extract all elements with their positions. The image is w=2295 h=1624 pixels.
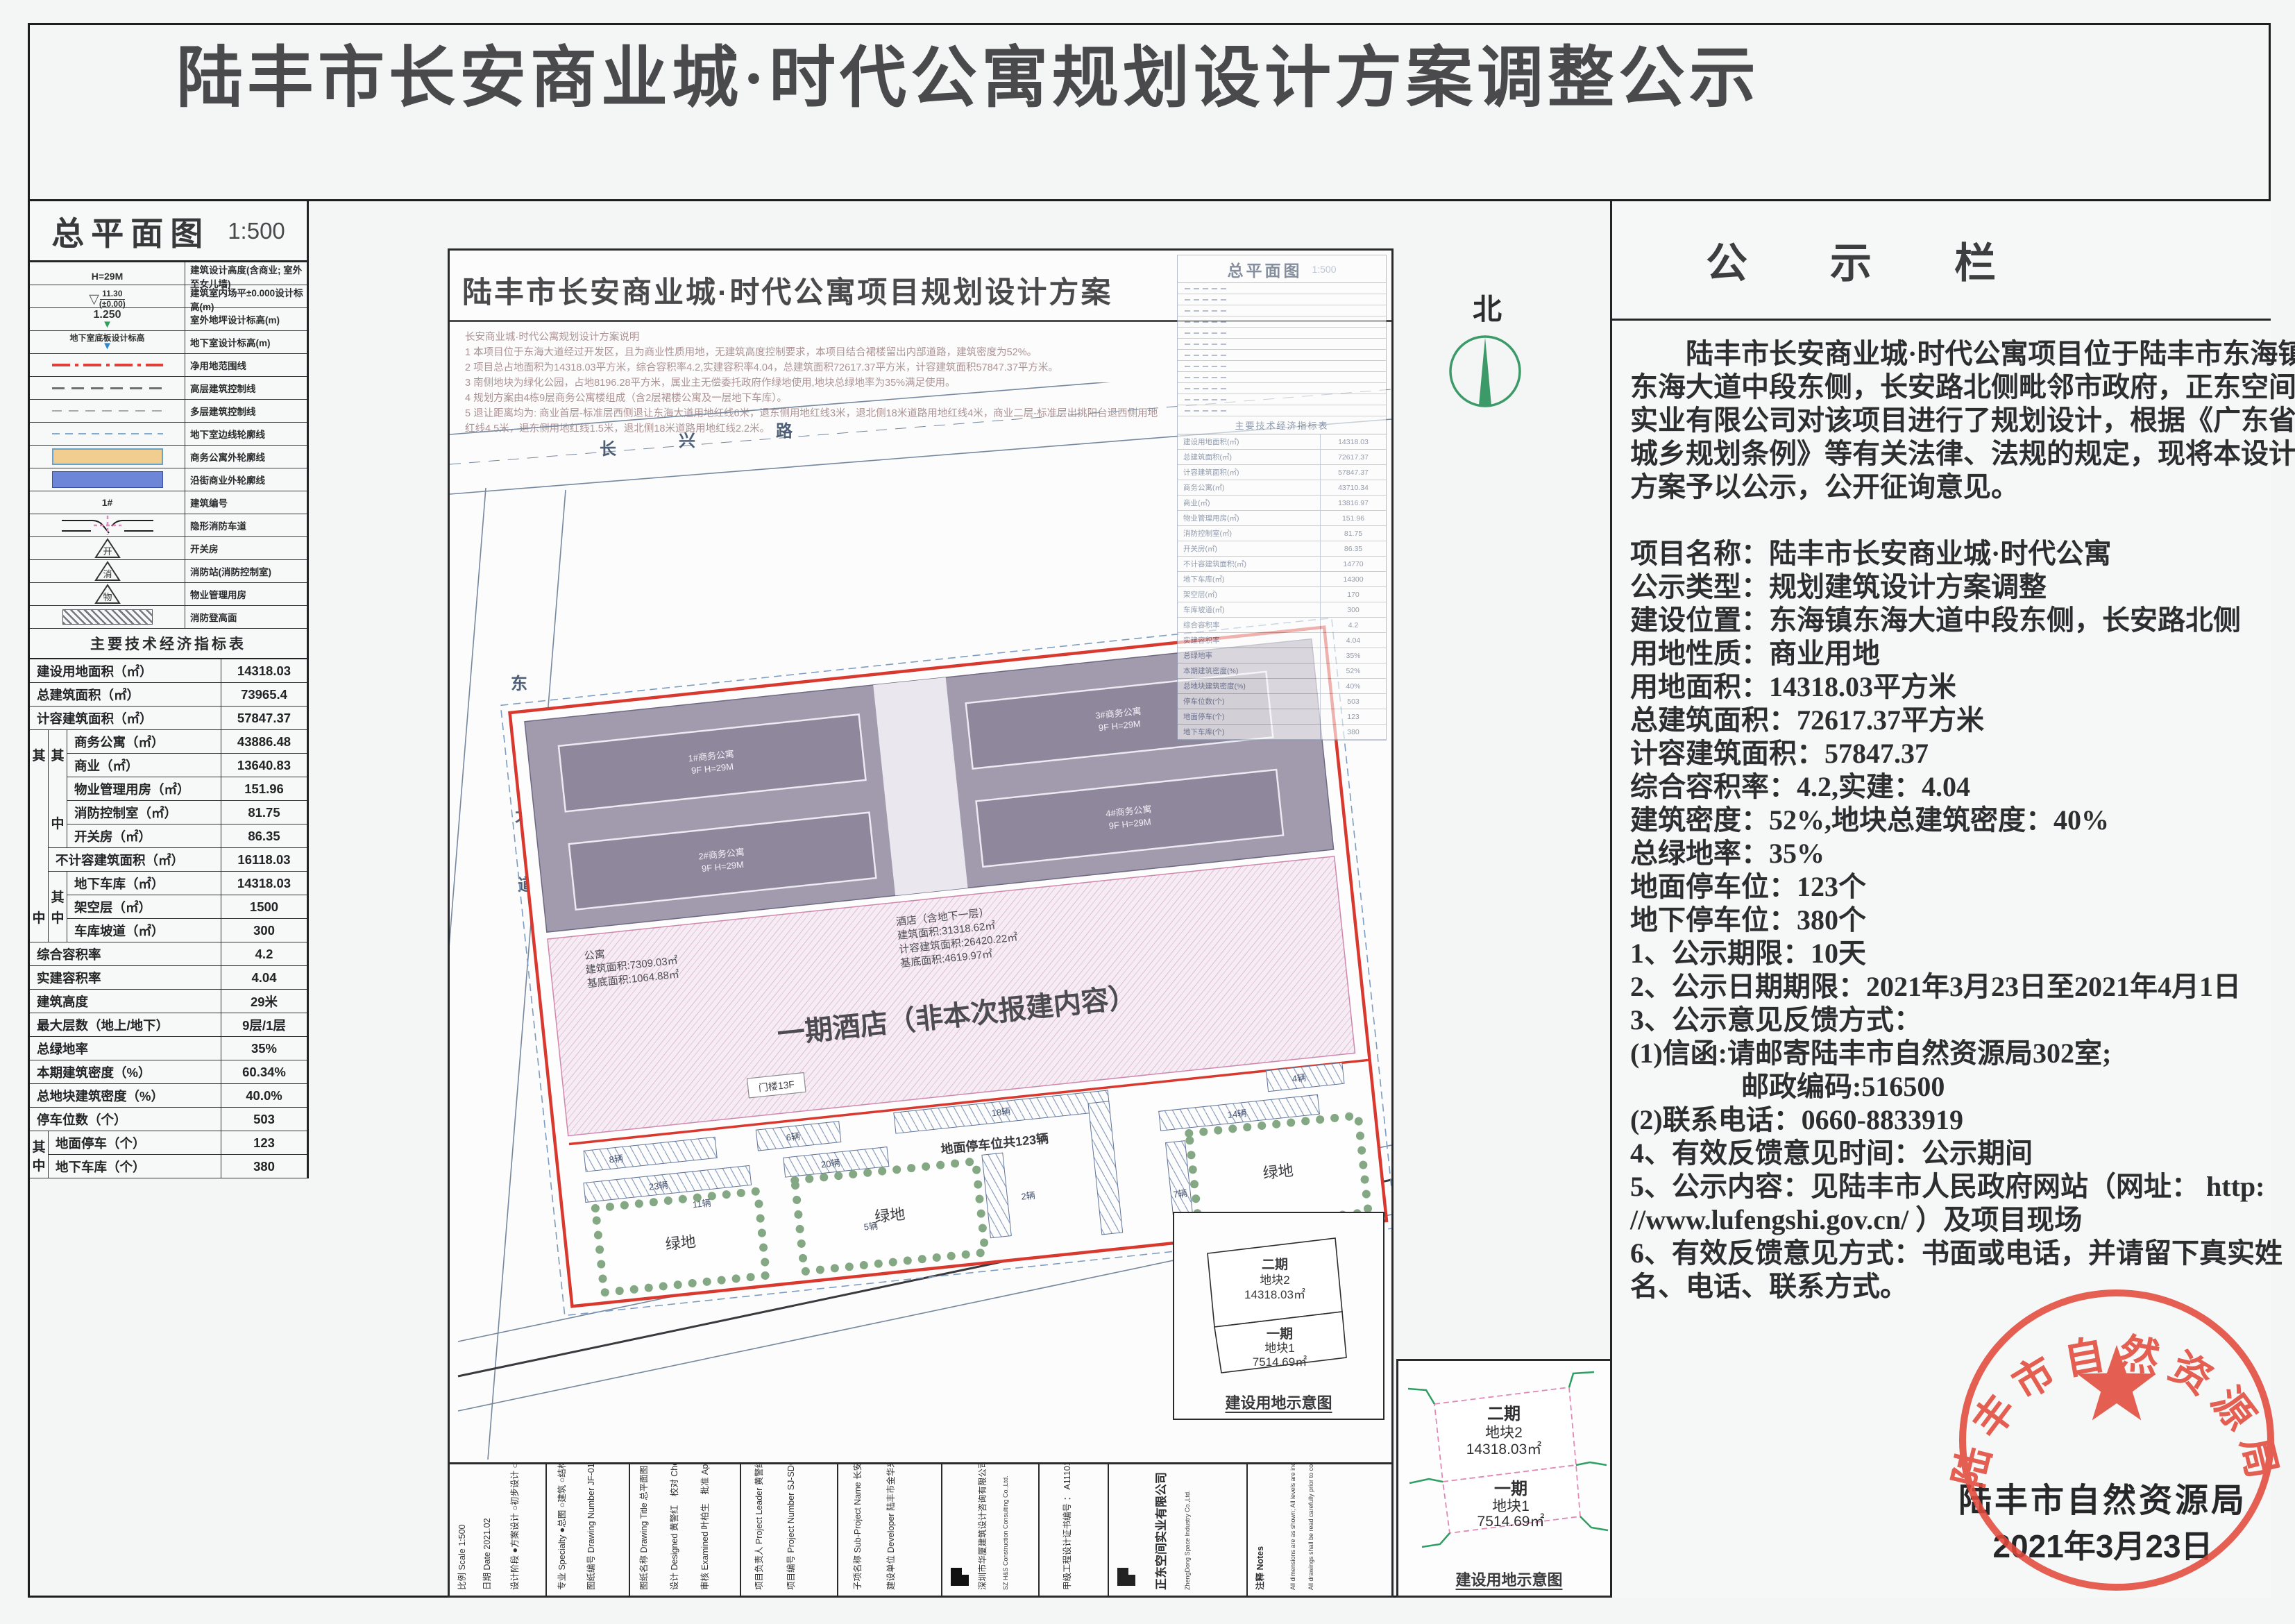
group-char: 中 <box>32 1156 45 1174</box>
mini-legend-row <box>1178 350 1386 361</box>
property-mgmt-symbol: 物 <box>30 583 185 605</box>
group-char: 其 <box>51 745 64 764</box>
mini-label: 不计容建筑面积(㎡) <box>1178 557 1320 571</box>
mini-label: 地面停车(个) <box>1178 709 1320 724</box>
mini-row: 开关房(㎡)86.35 <box>1178 541 1386 557</box>
indicator-label: 总地块建筑密度（%） <box>30 1084 221 1108</box>
tb-developer: 建设单位 Developer 陆丰市金华来花园酒店有限公司 <box>883 1464 897 1590</box>
legend-title: 总平面图 <box>51 207 210 255</box>
legend-row: 消防登高面 <box>30 606 307 629</box>
legend-row: 隐形消防车道 <box>30 514 307 537</box>
titleblock-notes-cell: 注释 Notes All dimensions are as shown; Al… <box>1248 1464 1384 1596</box>
legend-label: 地下室边线轮廓线 <box>185 423 307 445</box>
mini-label: 开关房(㎡) <box>1178 541 1320 556</box>
mini-ind-title: 主要技术经济指标表 <box>1178 416 1386 434</box>
notice-line: 建筑密度：52%,地块总建筑密度：40% <box>1630 804 2262 837</box>
indicator-value: 35% <box>221 1037 307 1060</box>
phase2-label: 二期 <box>1262 1257 1288 1272</box>
legend-label: 高层建筑控制线 <box>185 377 307 399</box>
notice-header: 公 示 栏 <box>1612 201 2271 321</box>
legend-row: 开 开关房 <box>30 537 307 560</box>
parcel2-area: 14318.03㎡ <box>1466 1441 1542 1457</box>
north-road-char: 兴 <box>679 432 695 450</box>
mini-value: 81.75 <box>1320 526 1386 541</box>
indicator-label: 计容建筑面积（㎡） <box>30 707 221 730</box>
note-line: 2 项目总占地面积为14318.03平方米，综合容积率4.2,实建容积率4.04… <box>465 360 1159 375</box>
indicator-label: 实建容积率 <box>30 966 221 990</box>
titleblock-leader-cell: 项目负责人 Project Leader 黄警红 项目编号 Project Nu… <box>741 1464 838 1596</box>
notice-line: 公示类型：规划建筑设计方案调整 <box>1630 570 2262 604</box>
titleblock-project-cell: 子项名称 Sub-Project Name 长安商业城·时代公寓 建设单位 De… <box>838 1464 942 1596</box>
legend-row: 1.250▼ 室外地坪设计标高(m) <box>30 308 307 331</box>
fire-station-symbol: 消 <box>30 560 185 582</box>
mini-legend-row <box>1178 361 1386 372</box>
notice-line: 计容建筑面积：57847.37 <box>1630 737 2262 770</box>
mini-row: 建设用地面积(㎡)14318.03 <box>1178 434 1386 450</box>
north-road-char: 路 <box>776 421 793 441</box>
indicator-label: 商务公寓（㎡） <box>67 730 221 754</box>
mini-label: 总绿地率 <box>1178 648 1320 663</box>
mini-label: 商务公寓(㎡) <box>1178 480 1320 495</box>
notice-line: 地面停车位：123个 <box>1630 870 2262 904</box>
north-arrow-icon <box>1447 328 1527 418</box>
basement-level-symbol: 地下室底板设计标高▼ <box>30 331 185 353</box>
notice-line: 4、有效反馈意见时间：公示期间 <box>1630 1137 2262 1170</box>
site-boundary-symbol <box>30 354 185 376</box>
building-number-symbol: 1# <box>30 491 185 514</box>
indicator-value: 60.34% <box>221 1060 307 1084</box>
indicator-value: 73965.4 <box>221 683 307 707</box>
legend-row: 地下室底板设计标高▼ 地下室设计标高(m) <box>30 331 307 354</box>
mini-value: 14300 <box>1320 572 1386 586</box>
mini-value: 380 <box>1320 725 1386 739</box>
blue-dash-line-icon <box>52 433 163 435</box>
mini-legend-row <box>1178 339 1386 350</box>
triangle-xiao-icon: 消 <box>94 561 121 582</box>
level-fraction: 11.30 (±0.00) <box>99 289 126 310</box>
apartment-outline-symbol <box>30 446 185 468</box>
mini-row: 停车位数(个)503 <box>1178 694 1386 709</box>
group-char: 其 <box>32 1137 45 1156</box>
building-number-text: 1# <box>102 497 113 508</box>
indicators-table-title: 主要技术经济指标表 <box>30 629 307 659</box>
mini-legend-row <box>1178 283 1386 294</box>
mini-legend-row <box>1178 394 1386 405</box>
parcel2-label: 地块2 <box>1485 1425 1523 1441</box>
indicator-label: 总建筑面积（㎡） <box>30 683 221 707</box>
legend-label: 净用地范围线 <box>185 354 307 376</box>
legend-row: 高层建筑控制线 <box>30 377 307 400</box>
mini-label: 停车位数(个) <box>1178 694 1320 709</box>
mini-row: 地下车库(个)380 <box>1178 725 1386 740</box>
gap-parcel-inset: 二期 地块2 14318.03㎡ 一期 地块1 7514.69㎡ 建设用地示意图 <box>1396 1359 1622 1598</box>
mini-row: 总地块建筑密度(%)40% <box>1178 679 1386 694</box>
mini-value: 151.96 <box>1320 511 1386 525</box>
legend-row: 净用地范围线 <box>30 354 307 377</box>
public-notice-panel: 公 示 栏 陆丰市长安商业城·时代公寓项目位于陆丰市东海镇 东海大道中段东侧，长… <box>1610 201 2271 1598</box>
parcel2-label: 地块2 <box>1260 1274 1289 1287</box>
count-label: 14辆 <box>1227 1108 1247 1120</box>
indicator-value: 14318.03 <box>221 872 307 895</box>
mini-value: 72617.37 <box>1320 450 1386 464</box>
indicator-label: 建设用地面积（㎡） <box>30 659 221 683</box>
green-label: 绿地 <box>665 1233 697 1253</box>
indicator-label: 最大层数（地上/地下） <box>30 1013 221 1037</box>
notice-line: 陆丰市长安商业城·时代公寓项目位于陆丰市东海镇 <box>1630 337 2262 371</box>
legend-label: 开关房 <box>185 537 307 559</box>
tb-examined: 审核 Examined 叶柏生 批准 Approved 黄警红 <box>697 1464 711 1590</box>
mini-table-header: 总平面图 1:500 <box>1178 255 1386 283</box>
fire-lane-symbol <box>30 514 185 536</box>
height-symbol-text: H=29M <box>92 271 124 282</box>
notice-line: 东海大道中段东侧，长安路北侧毗邻市政府，正东空间 <box>1630 371 2262 404</box>
mini-value: 52% <box>1320 663 1386 678</box>
indicator-value: 9层/1层 <box>221 1013 307 1037</box>
level-top: 11.30 <box>100 289 124 300</box>
open-triangle-icon: ▽ <box>89 291 99 307</box>
mini-value: 123 <box>1320 709 1386 724</box>
group-char: 其 <box>51 887 64 906</box>
mini-row: 综合容积率4.2 <box>1178 618 1386 633</box>
indicator-label: 开关房（㎡） <box>67 824 221 848</box>
mini-label: 总建筑面积(㎡) <box>1178 450 1320 464</box>
indicator-label: 不计容建筑面积（㎡） <box>49 848 221 872</box>
indicator-label: 商业（㎡） <box>67 754 221 777</box>
mini-value: 43710.34 <box>1320 480 1386 495</box>
mini-value: 503 <box>1320 694 1386 709</box>
fire-lane-icon <box>59 515 156 536</box>
notice-body: 陆丰市长安商业城·时代公寓项目位于陆丰市东海镇 东海大道中段东侧，长安路北侧毗邻… <box>1630 337 2262 1303</box>
mini-row: 地面停车(个)123 <box>1178 709 1386 725</box>
legend-panel-header: 总平面图 1:500 <box>30 201 307 262</box>
notice-line: 5、公示内容：见陆丰市人民政府网站（网址： http: <box>1630 1170 2262 1203</box>
indicator-value: 43886.48 <box>221 730 307 754</box>
legend-label: 消防登高面 <box>185 606 307 628</box>
siteplan-legend-panel: 总平面图 1:500 H=29M 建筑设计高度(含商业; 室外至女儿墙) ▽ 1… <box>30 201 309 1178</box>
indicator-value: 29米 <box>221 990 307 1013</box>
group-char: 中 <box>51 908 64 927</box>
indicator-value: 57847.37 <box>221 707 307 730</box>
notice-line <box>1630 504 2262 537</box>
notice-line: 6、有效反馈意见方式：书面或电话，并请留下真实姓 <box>1630 1237 2262 1270</box>
mini-scale: 1:500 <box>1312 264 1336 275</box>
tb-notes-en1: All dimensions are as shown; All levels … <box>1289 1464 1296 1590</box>
legend-label: 多层建筑控制线 <box>185 400 307 422</box>
mini-row: 总建筑面积(㎡)72617.37 <box>1178 450 1386 465</box>
mini-legend-row <box>1178 316 1386 328</box>
mini-row: 不计容建筑面积(㎡)14770 <box>1178 557 1386 572</box>
sheet-parcel-inset: 二期 地块2 14318.03㎡ 一期 地块1 7514.69㎡ 建设用地示意图 <box>1173 1212 1384 1420</box>
mini-value: 14770 <box>1320 557 1386 571</box>
mini-value: 300 <box>1320 602 1386 617</box>
mini-row: 车库坡道(㎡)300 <box>1178 602 1386 618</box>
phase2-label: 二期 <box>1487 1405 1521 1423</box>
notice-line: 城乡规划条例》等有关法律、法规的规定，现将本设计 <box>1630 437 2262 471</box>
legend-row: 1# 建筑编号 <box>30 491 307 514</box>
mini-label: 总地块建筑密度(%) <box>1178 679 1320 693</box>
seal-date-text: 2021年3月23日 <box>1950 1521 2255 1567</box>
street-commerce-outline-symbol <box>30 468 185 491</box>
mini-value: 170 <box>1320 587 1386 602</box>
sheet-parcel-diagram: 二期 地块2 14318.03㎡ 一期 地块1 7514.69㎡ <box>1174 1213 1382 1387</box>
tb-project-leader: 项目负责人 Project Leader 黄警红 <box>752 1464 765 1590</box>
mini-legend-row <box>1178 305 1386 316</box>
titleblock-specialty-cell: 专业 Specialty ●总图 ○建筑 ○结构 ○给排水 ○电气 图纸编号 D… <box>547 1464 630 1596</box>
green-label: 绿地 <box>1262 1162 1294 1182</box>
blue-triangle-icon: ▼ <box>102 342 112 350</box>
titleblock-consultant-cell: 深圳市华厦建筑设计咨询有限公司 SZ H&S Construction Cons… <box>942 1464 1040 1596</box>
mini-row: 总绿地率35% <box>1178 648 1386 663</box>
gap-parcel-diagram: 二期 地块2 14318.03㎡ 一期 地块1 7514.69㎡ <box>1398 1361 1620 1564</box>
tb-scale: 比例 Scale 1:500 <box>455 1525 468 1591</box>
notice-line: 名、电话、联系方式。 <box>1630 1270 2262 1303</box>
phase1-label: 一期 <box>1267 1326 1293 1342</box>
notice-line: 总绿地率：35% <box>1630 837 2262 870</box>
mini-row: 计容建筑面积(㎡)57847.37 <box>1178 465 1386 480</box>
highrise-control-symbol <box>30 377 185 399</box>
legend-label: 消防站(消防控制室) <box>185 560 307 582</box>
multistorey-control-symbol <box>30 400 185 422</box>
orange-rect-icon <box>52 448 163 465</box>
mini-row: 商业(㎡)13816.97 <box>1178 496 1386 511</box>
light-dash-line-icon <box>52 410 163 412</box>
mini-label: 商业(㎡) <box>1178 496 1320 510</box>
group-char: 中 <box>51 813 64 832</box>
tb-owner-cn: 正东空间实业有限公司 <box>1151 1472 1169 1590</box>
notice-line: 邮政编码:516500 <box>1630 1070 2262 1103</box>
mini-label: 地下车库(个) <box>1178 725 1320 739</box>
siteplan-sheet: 陆丰市长安商业城·时代公寓项目规划设计方案 长安商业城·时代公寓规划设计方案说明… <box>448 248 1394 1598</box>
indicator-value: 503 <box>221 1108 307 1131</box>
triangle-char: 消 <box>103 569 112 580</box>
mini-legend-row <box>1178 328 1386 339</box>
mini-value: 40% <box>1320 679 1386 693</box>
tb-cert-number: 甲级工程设计证书编号 ： A111010311 <box>1060 1464 1073 1590</box>
legend-row: 多层建筑控制线 <box>30 400 307 423</box>
mini-value: 13816.97 <box>1320 496 1386 510</box>
notice-line: 方案予以公示，公开征询意见。 <box>1630 471 2262 504</box>
indicator-value: 151.96 <box>221 777 307 801</box>
note-line: 1 本项目位于东海大道经过开发区，且为商业性质用地，无建筑高度控制要求，本项目结… <box>465 345 1159 360</box>
group-qizhong-inner2: 其中 <box>49 872 67 942</box>
note-line: 长安商业城·时代公寓规划设计方案说明 <box>465 330 1159 345</box>
titleblock-drawing-cell: 图纸名称 Drawing Title 总平面图 设计 Designed 黄警红 … <box>630 1464 741 1596</box>
mini-label: 消防控制室(㎡) <box>1178 526 1320 541</box>
north-label: 北 <box>1447 286 1527 328</box>
notice-line: 2、公示日期期限：2021年3月23日至2021年4月1日 <box>1630 970 2262 1004</box>
parcel2-area: 14318.03㎡ <box>1244 1288 1305 1301</box>
tb-phase: 设计阶段 ●方案设计 ○初步设计 ○施工图设计 <box>507 1464 520 1590</box>
mini-value: 4.2 <box>1320 618 1386 632</box>
parcel1-label: 地块1 <box>1492 1498 1530 1514</box>
indicator-value: 4.04 <box>221 966 307 990</box>
notice-line: (2)联系电话：0660-8833919 <box>1630 1103 2262 1137</box>
tb-drawing-title: 图纸名称 Drawing Title 总平面图 <box>636 1466 650 1590</box>
indicator-label: 地下车库（㎡） <box>67 872 221 895</box>
green-label: 绿地 <box>874 1205 906 1225</box>
parcel1-area: 7514.69㎡ <box>1253 1355 1307 1369</box>
legend-row: 物 物业管理用房 <box>30 583 307 606</box>
titleblock: 比例 Scale 1:500 日期 Date 2021.02 设计阶段 ●方案设… <box>450 1462 1391 1596</box>
legend-label: 物业管理用房 <box>185 583 307 605</box>
triangle-wu-icon: 物 <box>94 584 121 604</box>
legend-row: ▽ 11.30 (±0.00) 建筑室内场平±0.000设计标高(m) <box>30 285 307 308</box>
indicator-value: 4.2 <box>221 942 307 966</box>
notice-line: 地下停车位：380个 <box>1630 904 2262 937</box>
indicators-table: 建设用地面积（㎡） 14318.03 总建筑面积（㎡） 73965.4 计容建筑… <box>30 659 307 1178</box>
legend-label: 沿街商业外轮廓线 <box>185 468 307 491</box>
legend-label: 建筑编号 <box>185 491 307 514</box>
tb-drawing-number: 图纸编号 Drawing Number JF-01 <box>584 1464 597 1590</box>
legend-scale: 1:500 <box>228 218 285 244</box>
blue-rect-icon <box>52 471 163 488</box>
legend-label: 商务公寓外轮廓线 <box>185 446 307 468</box>
titleblock-scale-cell: 比例 Scale 1:500 日期 Date 2021.02 设计阶段 ●方案设… <box>450 1464 547 1596</box>
titleblock-cert-cell: 甲级工程设计证书编号 ： A111010311 <box>1040 1464 1109 1596</box>
caption-text: 建设用地示意图 <box>1455 1571 1562 1589</box>
indicator-label: 地面停车（个） <box>49 1131 221 1155</box>
notice-line: 用地面积：14318.03平方米 <box>1630 670 2262 704</box>
count-label: 11辆 <box>692 1198 711 1210</box>
red-dashdot-line-icon <box>52 364 163 366</box>
mini-value: 86.35 <box>1320 541 1386 556</box>
indicator-label: 架空层（㎡） <box>67 895 221 919</box>
count-label: 4辆 <box>1292 1072 1307 1084</box>
mini-value: 57847.37 <box>1320 465 1386 480</box>
sheet-title: 陆丰市长安商业城·时代公寓项目规划设计方案 <box>462 269 1112 312</box>
notice-line: 1、公示期限：10天 <box>1630 937 2262 970</box>
tb-date: 日期 Date 2021.02 <box>480 1518 493 1590</box>
count-label: 5辆 <box>863 1221 879 1233</box>
indicator-label: 车库坡道（㎡） <box>67 919 221 942</box>
outdoor-level-symbol: 1.250▼ <box>30 308 185 330</box>
mini-label: 建设用地面积(㎡) <box>1178 434 1320 449</box>
mini-legend-row <box>1178 372 1386 383</box>
indicator-label: 消防控制室（㎡） <box>67 801 221 824</box>
notice-line: 建设位置：东海镇东海大道中段东侧，长安路北侧 <box>1630 604 2262 637</box>
notice-line: 项目名称：陆丰市长安商业城·时代公寓 <box>1630 537 2262 570</box>
count-label: 20辆 <box>820 1158 840 1170</box>
page-title: 陆丰市长安商业城·时代公寓规划设计方案调整公示 <box>153 24 1784 120</box>
legend-row: H=29M 建筑设计高度(含商业; 室外至女儿墙) <box>30 262 307 285</box>
indicator-value: 81.75 <box>221 801 307 824</box>
mini-label: 地下车库(㎡) <box>1178 572 1320 586</box>
tb-owner-en: ZhengDong Space Industry Co.,Ltd. <box>1184 1490 1191 1590</box>
tb-consultant-en: SZ H&S Construction Consulting Co.,Ltd. <box>1002 1475 1009 1590</box>
gray-dash-line-icon <box>52 387 163 389</box>
legend-row: 沿街商业外轮廓线 <box>30 468 307 491</box>
basement-outline-symbol <box>30 423 185 445</box>
mini-title: 总平面图 <box>1227 257 1302 281</box>
indicator-label: 建筑高度 <box>30 990 221 1013</box>
hatch-rect-icon <box>62 609 153 625</box>
indicator-value: 14318.03 <box>221 659 307 683</box>
group-qizhong-outer: 其中 <box>30 730 49 942</box>
notice-header-text: 公 示 栏 <box>1612 230 2032 290</box>
north-road-char: 长 <box>600 440 617 459</box>
apt-info-line: 公寓 <box>584 948 606 963</box>
indicator-label: 物业管理用房（㎡） <box>67 777 221 801</box>
count-label: 6辆 <box>786 1131 801 1143</box>
green-triangle-icon: ▼ <box>102 321 112 329</box>
indicator-value: 123 <box>221 1131 307 1155</box>
legend-label: 室外地坪设计标高(m) <box>185 308 307 330</box>
mini-row: 本期建筑密度(%)52% <box>1178 663 1386 679</box>
parcel1-area: 7514.69㎡ <box>1477 1513 1545 1530</box>
notice-poster: 陆丰市长安商业城·时代公寓规划设计方案调整公示 总平面图 1:500 H=29M… <box>0 0 2295 1624</box>
mini-value: 14318.03 <box>1320 434 1386 449</box>
group-char: 中 <box>32 908 45 927</box>
mini-legend-row <box>1178 383 1386 394</box>
switch-room-symbol: 开 <box>30 537 185 559</box>
mini-row: 架空层(㎡)170 <box>1178 587 1386 602</box>
mini-label: 物业管理用房(㎡) <box>1178 511 1320 525</box>
indicator-value: 1500 <box>221 895 307 919</box>
tb-project-number: 项目编号 Project Number SJ-SDGY-2020 <box>784 1464 797 1590</box>
group-char: 其 <box>32 745 45 764</box>
mini-row: 消防控制室(㎡)81.75 <box>1178 526 1386 541</box>
indicator-label: 停车位数（个） <box>30 1108 221 1131</box>
indicator-label: 地下车库（个） <box>49 1155 221 1178</box>
mini-label: 本期建筑密度(%) <box>1178 663 1320 678</box>
indicator-label: 综合容积率 <box>30 942 221 966</box>
legend-row: 消 消防站(消防控制室) <box>30 560 307 583</box>
notice-line: 3、公示意见反馈方式： <box>1630 1004 2262 1037</box>
sheet-mini-table: 总平面图 1:500 主要技术经济指标表 建设用地面积(㎡)14318.03 总… <box>1177 255 1387 741</box>
west-road-char: 东 <box>511 674 527 693</box>
sheet-inset-caption: 建设用地示意图 <box>1174 1391 1383 1413</box>
seal-agency-text: 陆丰市自然资源局 <box>1950 1473 2255 1521</box>
mini-label: 车库坡道(㎡) <box>1178 602 1320 617</box>
mini-legend-row <box>1178 405 1386 416</box>
tb-specialty: 专业 Specialty ●总图 ○建筑 ○结构 ○给排水 ○电气 <box>554 1464 568 1590</box>
north-arrow: 北 <box>1447 286 1527 422</box>
indicator-value: 86.35 <box>221 824 307 848</box>
mini-row: 商务公寓(㎡)43710.34 <box>1178 480 1386 496</box>
group-qizhong-parking: 其中 <box>30 1131 49 1178</box>
mini-label: 综合容积率 <box>1178 618 1320 632</box>
count-label: 18辆 <box>991 1106 1011 1119</box>
phase1-label: 一期 <box>1494 1480 1527 1498</box>
gap-inset-caption: 建设用地示意图 <box>1398 1568 1620 1590</box>
mini-label: 架空层(㎡) <box>1178 587 1320 602</box>
indicator-value: 380 <box>221 1155 307 1178</box>
indicator-value: 13640.83 <box>221 754 307 777</box>
triangle-kai-icon: 开 <box>94 538 121 559</box>
legend-row: 商务公寓外轮廓线 <box>30 446 307 468</box>
legend-label: 地下室设计标高(m) <box>185 331 307 353</box>
notice-line: 综合容积率：4.2,实建：4.04 <box>1630 770 2262 804</box>
indicator-value: 300 <box>221 919 307 942</box>
consultant-logo <box>951 1568 969 1586</box>
owner-logo <box>1117 1568 1135 1586</box>
group-qizhong-inner: 其中 <box>49 730 67 848</box>
triangle-char: 物 <box>103 592 112 602</box>
notice-line: 用地性质：商业用地 <box>1630 637 2262 670</box>
tb-notes-en2: All drawings shall be read carefully pri… <box>1307 1464 1314 1590</box>
indicator-value: 16118.03 <box>221 848 307 872</box>
mini-label: 计容建筑面积(㎡) <box>1178 465 1320 480</box>
tb-notes-title: 注释 Notes <box>1253 1546 1266 1590</box>
titleblock-owner-cell: 正东空间实业有限公司 ZhengDong Space Industry Co.,… <box>1109 1464 1248 1596</box>
indicator-label: 总绿地率 <box>30 1037 221 1060</box>
indicator-value: 40.0% <box>221 1084 307 1108</box>
mini-row: 地下车库(㎡)14300 <box>1178 572 1386 587</box>
mini-label: 实建容积率 <box>1178 633 1320 648</box>
caption-text: 建设用地示意图 <box>1225 1394 1332 1412</box>
tb-consultant-cn: 深圳市华厦建筑设计咨询有限公司 <box>975 1464 988 1590</box>
mini-value: 35% <box>1320 648 1386 663</box>
